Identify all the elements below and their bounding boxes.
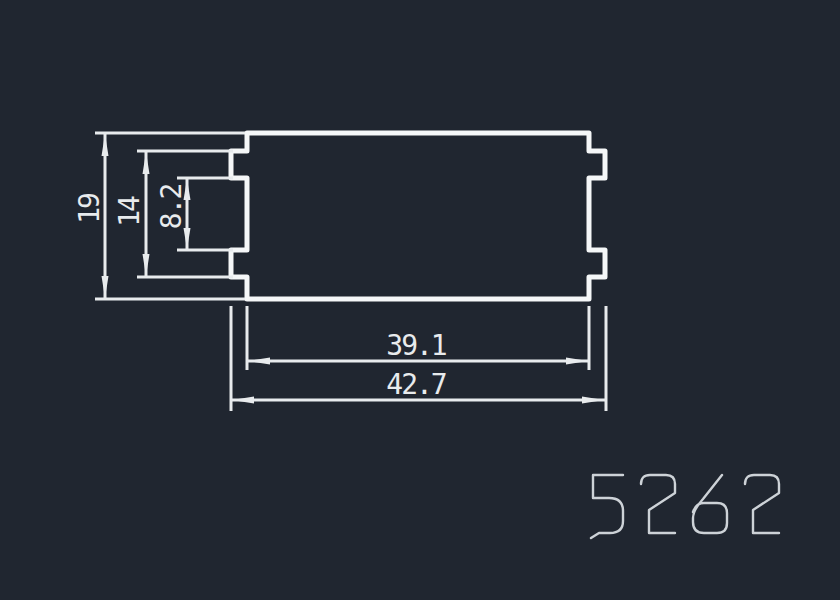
dim-arrow-right xyxy=(582,397,604,404)
dim-text-overall-width: 42.7 xyxy=(386,368,446,401)
profile-outline[interactable] xyxy=(231,133,605,299)
dim-text-tab-inner-gap: 8.2 xyxy=(155,185,188,230)
dim-arrow-up xyxy=(102,134,109,156)
dim-text-tab-outer-height: 14 xyxy=(113,196,146,227)
dim-text-overall-height: 19 xyxy=(73,194,106,224)
dim-text-body-width: 39.1 xyxy=(386,329,446,362)
dim-arrow-up xyxy=(143,152,150,174)
dimension-tab-inner-gap[interactable]: 8.2 xyxy=(155,178,233,250)
part-number-label[interactable]: 5262 xyxy=(584,458,786,556)
dimension-body-width[interactable]: 39.1 xyxy=(247,306,589,370)
dim-arrow-down xyxy=(102,276,109,298)
dimension-set: 19 14 8.2 xyxy=(73,133,606,411)
dim-arrow-down xyxy=(184,228,191,249)
drawing-canvas[interactable]: 19 14 8.2 xyxy=(0,0,840,600)
dim-arrow-left xyxy=(232,397,254,404)
part-number-text: 5262 xyxy=(584,458,786,556)
dim-arrow-left xyxy=(248,358,270,365)
cad-viewport: 19 14 8.2 xyxy=(0,0,840,600)
dim-arrow-down xyxy=(143,254,150,276)
dim-arrow-right xyxy=(566,358,588,365)
